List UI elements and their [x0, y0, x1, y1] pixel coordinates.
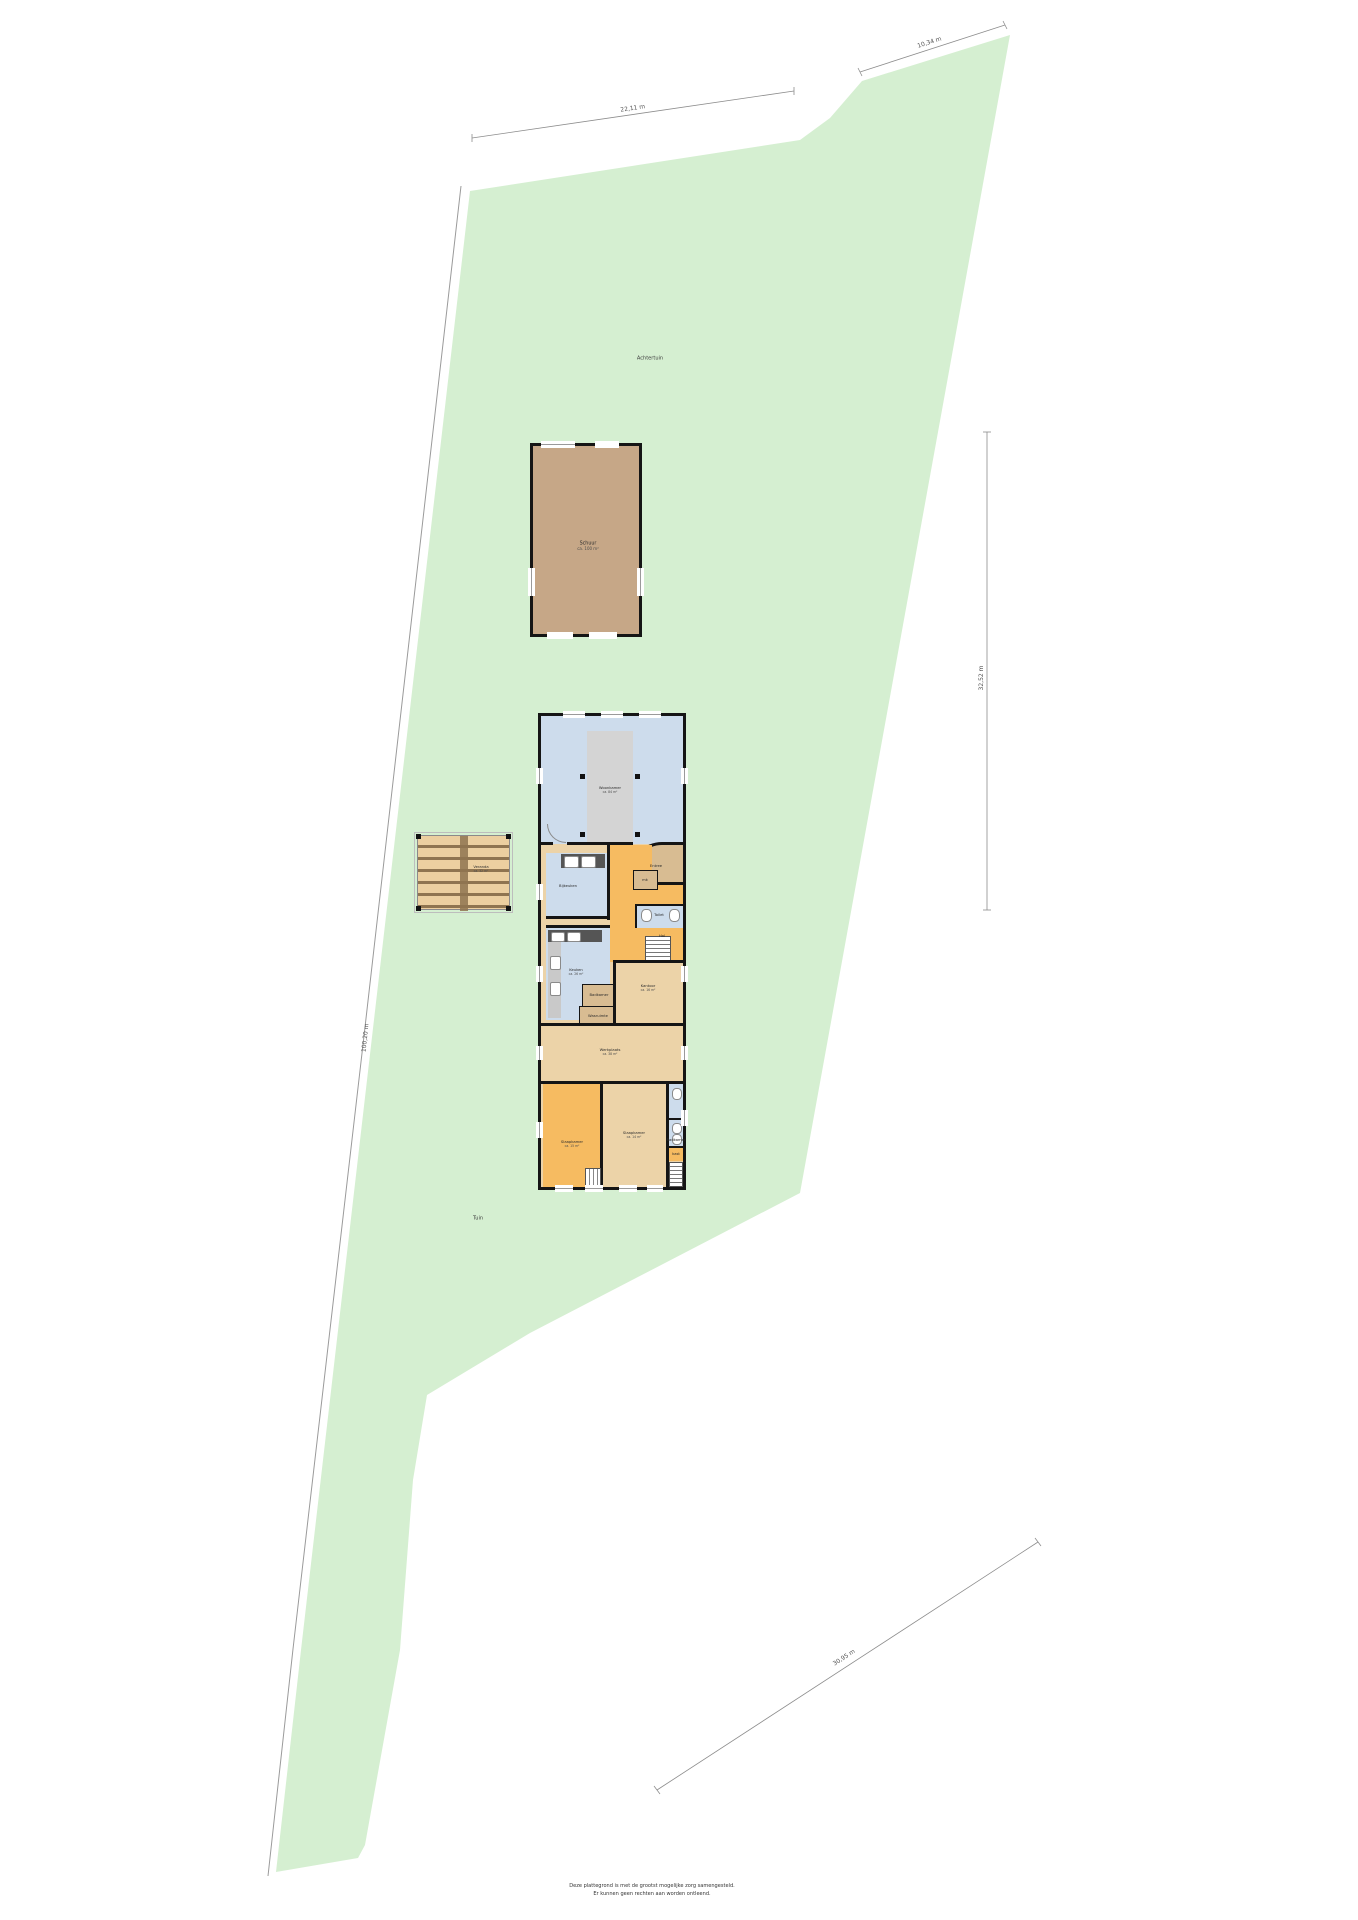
toilet-label: Toilet [654, 913, 664, 918]
werkplaats-name: Werkplaats [600, 1048, 621, 1052]
kast-name: kast [672, 1152, 680, 1156]
barn-door-bottom-right [589, 632, 617, 639]
window [536, 768, 543, 784]
veranda-post [506, 906, 511, 911]
sink-fixture [551, 932, 565, 942]
site-plan-canvas: 22,11 m 10,34 m 32,52 m 100,20 m 30,95 m… [0, 0, 1358, 1920]
veranda-post [506, 834, 511, 839]
veranda-area: ca. 32 m² [473, 869, 488, 873]
veranda-post [416, 906, 421, 911]
wasruimte-name: Wasruimte [588, 1014, 608, 1018]
house-building: mk [538, 713, 686, 1190]
slaapkamer-1-label: Slaapkamer ca. 15 m² [561, 1140, 583, 1149]
column [580, 832, 585, 837]
veranda-name: Veranda [473, 865, 488, 869]
appliance-fixture [581, 856, 596, 868]
window [681, 1046, 688, 1060]
window [619, 1185, 637, 1192]
window [681, 966, 688, 982]
toilet-fixture [672, 1088, 682, 1100]
toilet-fixture [669, 909, 680, 922]
hal-label: Hal [659, 934, 665, 939]
keuken-area: ca. 26 m² [569, 972, 584, 976]
column [635, 774, 640, 779]
dimension-line-bottom-right [654, 1538, 1041, 1794]
interior-wall [546, 916, 610, 919]
staircase [669, 1162, 683, 1187]
veranda-label: Veranda ca. 32 m² [473, 865, 488, 874]
dimension-label-left: 100,20 m [361, 1023, 371, 1052]
slaapkamer-2-area: ca. 14 m² [623, 1135, 645, 1139]
barn-window-top [541, 441, 575, 448]
kantoor-label: Kantoor ca. 16 m² [641, 984, 656, 993]
window [536, 1122, 543, 1138]
window [536, 1046, 543, 1060]
hal-name: Hal [659, 934, 665, 938]
kantoor-area: ca. 16 m² [641, 988, 656, 992]
window [536, 884, 543, 900]
dimension-label-top: 22,11 m [620, 103, 646, 114]
appliance-fixture [550, 956, 561, 970]
veranda-structure: Veranda ca. 32 m² [417, 835, 510, 910]
barn-label: Schuur ca. 100 m² [577, 541, 599, 552]
garden-back-label: Achtertuin [637, 355, 663, 361]
slaapkamer-2-name: Slaapkamer [623, 1131, 645, 1135]
kantoor-name: Kantoor [641, 984, 656, 988]
entree-name: Entree [650, 864, 662, 868]
werkplaats-area: ca. 38 m² [600, 1052, 621, 1056]
slaapkamer-2-label: Slaapkamer ca. 14 m² [623, 1131, 645, 1140]
window [681, 768, 688, 784]
window [639, 711, 661, 718]
veranda-post [416, 834, 421, 839]
slaapkamer-1-area: ca. 15 m² [561, 1144, 583, 1148]
column [580, 774, 585, 779]
woonkamer-label: Woonkamer ca. 84 m² [599, 786, 621, 795]
room-kantoor [616, 963, 683, 1024]
counter [548, 942, 561, 1018]
entree-label: Entree [650, 864, 662, 869]
disclaimer-line-1: Deze plattegrond is met de grootst mogel… [569, 1882, 735, 1890]
staircase [645, 936, 671, 962]
window [563, 711, 585, 718]
window [536, 966, 543, 982]
keuken-label: Keuken ca. 26 m² [569, 968, 584, 977]
sink-fixture [564, 856, 579, 868]
disclaimer-line-2: Er kunnen geen rechten aan worden ontlee… [569, 1890, 735, 1898]
window [601, 711, 623, 718]
window [585, 1185, 603, 1192]
barn-name: Schuur [580, 541, 597, 547]
badkamer-2-label: Badkamer [666, 1138, 685, 1143]
wasruimte-label: Wasruimte [588, 1014, 608, 1019]
window [647, 1185, 663, 1192]
meterkast-label: mk [642, 878, 648, 883]
kast-label: kast [672, 1152, 680, 1157]
badkamer-2-name: Badkamer [666, 1138, 685, 1142]
interior-wall [541, 842, 553, 845]
window [681, 1110, 688, 1126]
bijkeuken-name: Bijkeuken [559, 884, 577, 888]
meterkast-name: mk [642, 878, 648, 882]
barn-door-top [595, 441, 619, 448]
badkamer-label: Badkamer [589, 993, 608, 998]
woonkamer-name: Woonkamer [599, 786, 621, 790]
badkamer-name: Badkamer [589, 993, 608, 997]
interior-wall [546, 925, 610, 928]
barn-building: Schuur ca. 100 m² [530, 443, 642, 637]
barn-area: ca. 100 m² [577, 547, 599, 552]
appliance-fixture [550, 982, 561, 996]
dimension-label-bottom-right: 30,95 m [832, 1648, 857, 1668]
veranda-center-beam [460, 836, 468, 911]
werkplaats-label: Werkplaats ca. 38 m² [600, 1048, 621, 1057]
toilet-name: Toilet [654, 913, 664, 917]
woonkamer-area: ca. 84 m² [599, 790, 621, 794]
barn-window-left [528, 568, 535, 596]
keuken-name: Keuken [569, 968, 583, 972]
slaapkamer-1-name: Slaapkamer [561, 1140, 583, 1144]
dimension-line-top [472, 87, 794, 142]
barn-door-bottom-left [547, 632, 573, 639]
barn-window-right [637, 568, 644, 596]
garden-front-label: Tuin [473, 1215, 483, 1221]
column [635, 832, 640, 837]
dimension-label-top-right: 10,34 m [917, 35, 943, 49]
dimension-label-right: 32,52 m [978, 665, 985, 690]
window [555, 1185, 573, 1192]
appliance-fixture [567, 932, 581, 942]
disclaimer: Deze plattegrond is met de grootst mogel… [569, 1882, 735, 1897]
toilet-fixture [641, 909, 652, 922]
bijkeuken-label: Bijkeuken [559, 884, 577, 889]
